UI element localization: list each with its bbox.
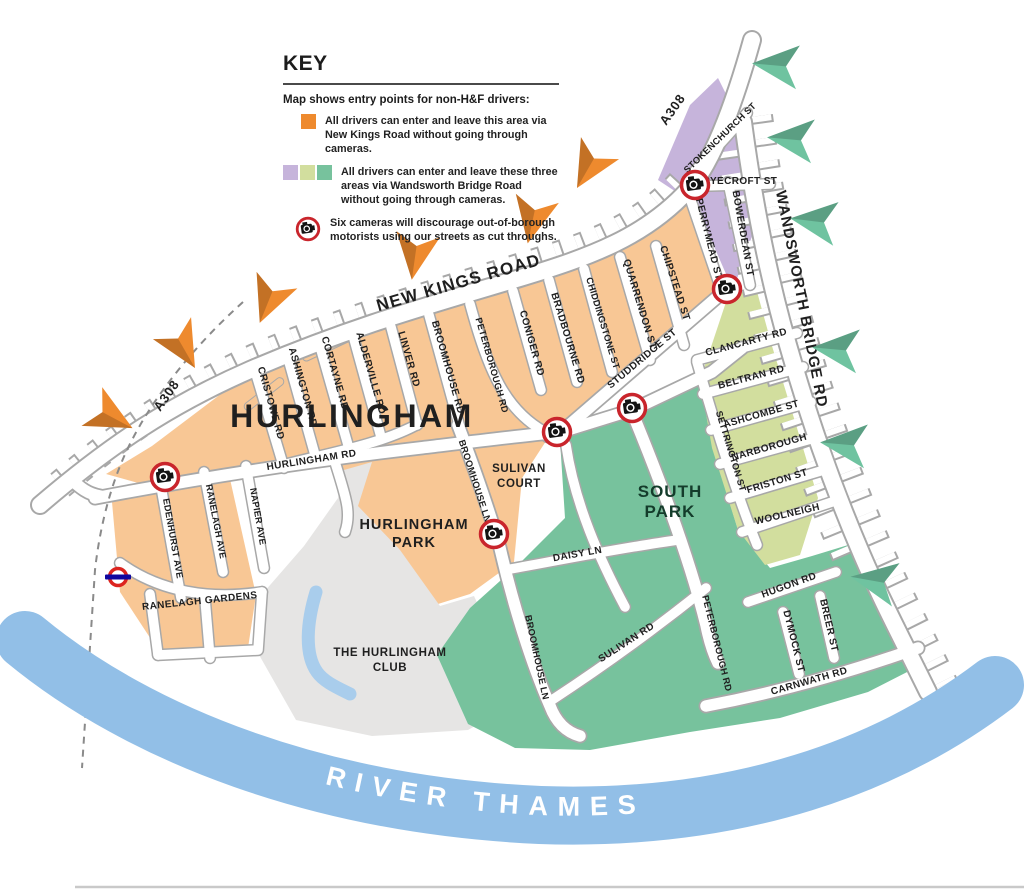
camera-icon [152, 464, 179, 491]
camera-icon [619, 395, 646, 422]
camera-icon [714, 276, 741, 303]
orange-area-swatch [301, 114, 316, 129]
key-item-new-kings: All drivers can enter and leave this are… [283, 114, 559, 156]
key-item-text: All drivers can enter and leave these th… [341, 165, 559, 207]
area-label-hurlingham-club: THE HURLINGHAM [333, 647, 446, 659]
area-label-hurlingham-park: HURLINGHAM [359, 517, 468, 533]
area-label-south-park: PARK [645, 502, 696, 521]
key-item-text: All drivers can enter and leave this are… [325, 114, 553, 156]
orange-entry-arrow-icon [558, 137, 619, 199]
green-entry-arrow-icon [765, 115, 815, 163]
area-label-south-park: SOUTH [638, 482, 703, 501]
area-label-sulivan-court: SULIVAN [492, 463, 546, 475]
key-item-cameras: Six cameras will discourage out-of-borou… [283, 216, 559, 244]
area-label-hurlingham-park: PARK [392, 535, 436, 551]
key-subtitle: Map shows entry points for non-H&F drive… [283, 94, 559, 106]
camera-icon [544, 419, 571, 446]
area-label-hurlingham: HURLINGHAM [230, 398, 474, 434]
camera-icon [682, 172, 709, 199]
area-label-hurlingham-club: CLUB [373, 662, 407, 674]
key-item-wandsworth: All drivers can enter and leave these th… [283, 165, 559, 207]
street-label: RYECROFT ST [703, 176, 778, 187]
purple-lime-teal-swatches [283, 165, 332, 180]
map-page: RIVER THAMES NEW KINGS ROAD A308 A308 WA… [0, 0, 1024, 892]
key-item-text: Six cameras will discourage out-of-borou… [330, 216, 558, 244]
key-title: KEY [283, 52, 559, 85]
orange-entry-arrow-icon [153, 317, 214, 379]
orange-entry-arrow-icon [239, 272, 297, 331]
camera-icon [295, 216, 321, 242]
map-key: KEY Map shows entry points for non-H&F d… [283, 52, 559, 253]
camera-icon [481, 521, 508, 548]
area-label-sulivan-court: COURT [497, 478, 541, 490]
